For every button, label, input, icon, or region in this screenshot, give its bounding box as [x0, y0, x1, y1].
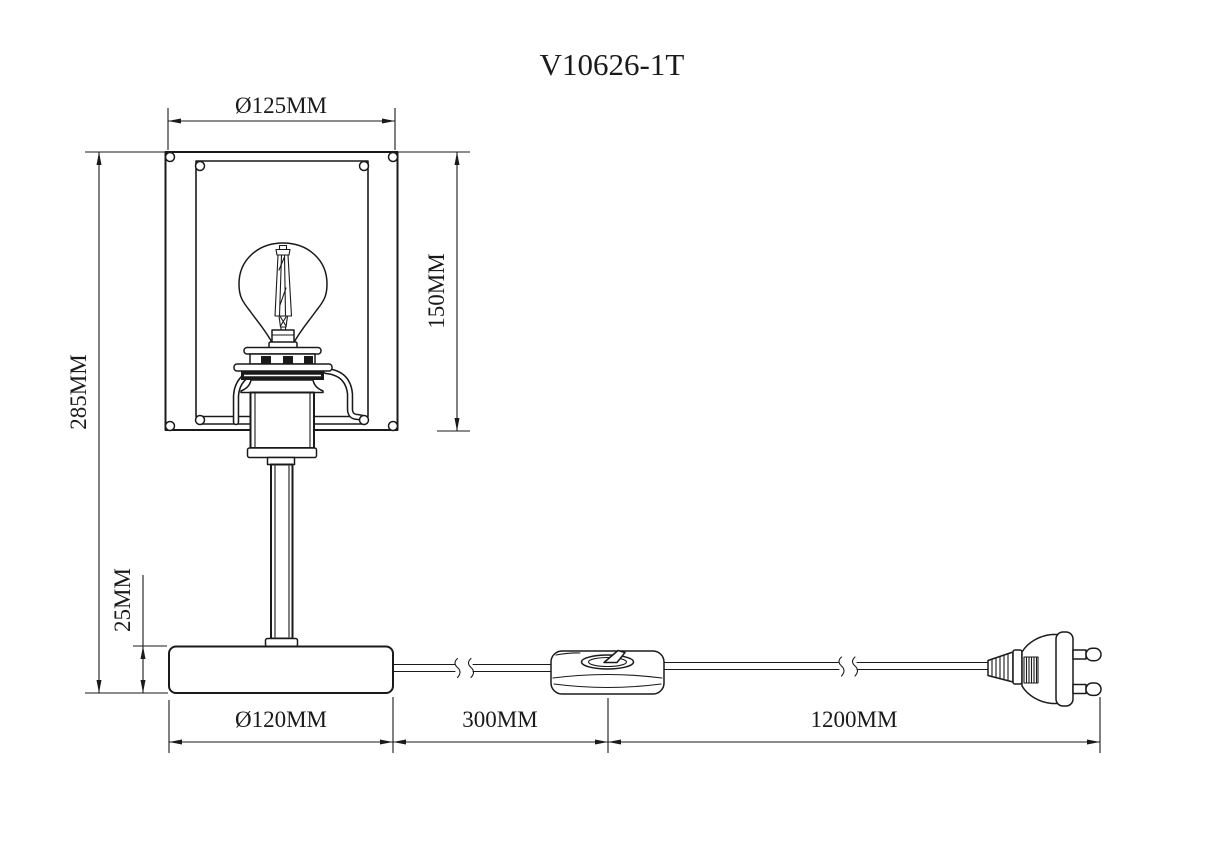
- plug-pin: [1073, 683, 1101, 695]
- dimension-label: Ø125MM: [235, 93, 327, 118]
- cord-segment-2: [473, 665, 551, 672]
- strain-relief-icon: [988, 652, 1013, 682]
- cord-segment-1: [393, 665, 455, 672]
- technical-drawing-canvas: V10626-1T: [0, 0, 1212, 848]
- lamp-socket: [234, 348, 332, 465]
- cord-break-icon: [839, 657, 858, 676]
- dimension-label: 300MM: [462, 707, 537, 732]
- dimension-base-height: 25MM: [110, 568, 146, 693]
- dimension-label: Ø120MM: [235, 707, 327, 732]
- cord-break-icon: [455, 659, 474, 678]
- dimension-label: 1200MM: [811, 707, 898, 732]
- product-code-title: V10626-1T: [540, 47, 685, 82]
- inline-rocker-switch: [551, 651, 664, 695]
- bulb-screw-base: [269, 330, 297, 348]
- light-bulb: [239, 243, 327, 348]
- dimension-base-diameter: Ø120MM: [169, 707, 393, 745]
- plug-pin: [1073, 648, 1101, 660]
- dimension-total-height: 285MM: [66, 152, 102, 693]
- dimension-label: 150MM: [424, 253, 449, 328]
- dimension-cord-to-switch: 300MM: [393, 707, 608, 745]
- plug-face: [1056, 632, 1073, 706]
- dimension-shade-height: 150MM: [424, 152, 460, 431]
- lamp-stem: [266, 465, 298, 647]
- cord-segment-3: [664, 663, 839, 670]
- power-plug: [988, 632, 1101, 706]
- dimension-label: 25MM: [110, 568, 135, 632]
- dimension-shade-diameter: Ø125MM: [168, 93, 395, 124]
- dimension-cord-to-plug: 1200MM: [608, 707, 1100, 745]
- lamp-base: [169, 647, 393, 694]
- dimension-label: 285MM: [66, 354, 91, 429]
- lamp-dimension-drawing: V10626-1T: [0, 0, 1212, 848]
- power-cord: [393, 657, 989, 678]
- cord-segment-4: [857, 663, 989, 670]
